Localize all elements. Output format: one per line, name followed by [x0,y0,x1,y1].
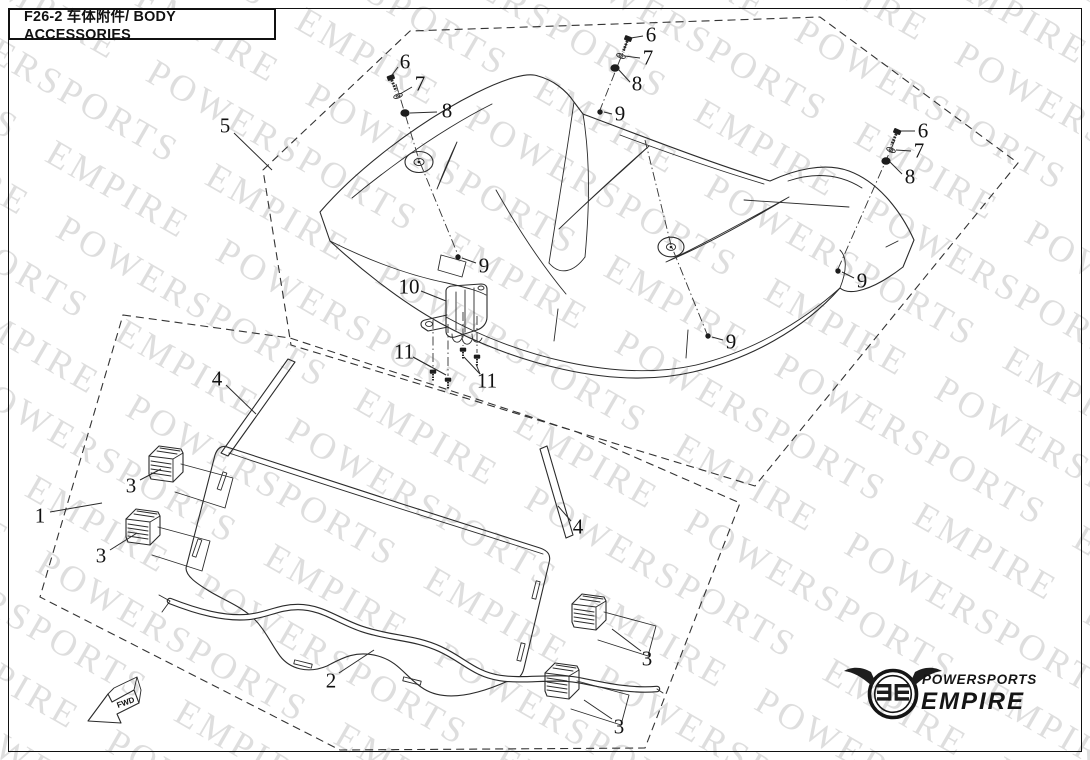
panel-slots [192,472,540,685]
bolt-washer-nut-set [881,128,901,165]
clip-part [572,594,656,656]
logo-wing-left [844,668,875,686]
clip-part [149,446,233,508]
roof-grommet-left [405,152,433,173]
rear-panel-drawing [186,446,550,695]
roof-assembly-boundary [263,17,1018,486]
logo-emblem-outer-ring [870,671,917,718]
diagram-canvas: FWD POWERSPORTS EMPIRE [0,0,1090,760]
mount-point [705,333,710,338]
fwd-arrow: FWD [88,677,141,723]
roof-panel-drawing [320,75,914,378]
clip-part [545,663,629,725]
bracket-bolt [430,370,436,381]
title-box: F26-2 车体附件/ BODY ACCESSORIES [8,8,276,40]
bracket-bolt [474,355,480,366]
fastener-axis-lines [396,42,895,376]
fwd-label: FWD [116,695,136,710]
trim-strip-left [221,359,295,456]
panel-assembly-boundary [40,315,740,750]
mount-point [597,109,602,114]
page-title: F26-2 车体附件/ BODY ACCESSORIES [24,5,264,43]
bolt-washer-nut-set [386,74,409,117]
logo-double-e-monogram [877,684,909,701]
callout-leader-lines [50,36,915,719]
logo-text-powersports: POWERSPORTS [922,672,1037,687]
bracket-bolts [430,348,480,389]
bracket-bolt [445,378,451,389]
trim-strip-right [540,446,573,538]
logo-text-empire: EMPIRE [921,688,1025,715]
roof-grommet-right [658,237,684,257]
bolt-washer-nut-set [610,35,632,72]
bracket-bolt [460,348,466,359]
mount-point [455,254,460,259]
brand-logo: POWERSPORTS EMPIRE [844,668,1037,718]
parts-diagram-page: POWERSPORTS EMPIRE POWERSPORTS EMPIRE PO… [0,0,1090,760]
mount-point [835,268,840,273]
